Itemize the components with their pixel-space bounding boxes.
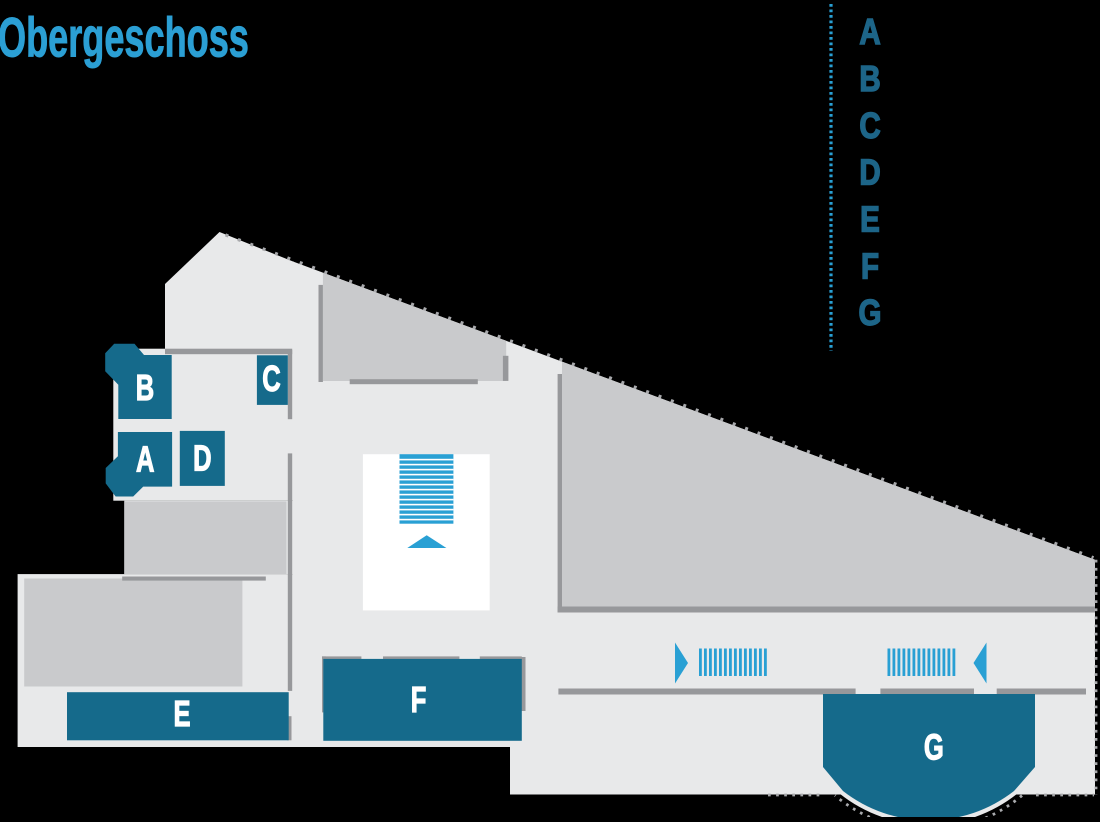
- svg-text:A: A: [859, 11, 880, 51]
- svg-text:C: C: [262, 357, 280, 399]
- svg-text:D: D: [859, 152, 880, 192]
- svg-text:C: C: [859, 105, 880, 145]
- svg-text:Obergeschoss: Obergeschoss: [0, 5, 249, 68]
- svg-text:B: B: [136, 366, 154, 408]
- svg-text:F: F: [861, 245, 879, 285]
- svg-text:G: G: [924, 726, 944, 768]
- svg-text:G: G: [859, 292, 882, 332]
- svg-text:A: A: [136, 438, 154, 480]
- svg-text:B: B: [859, 58, 880, 98]
- svg-text:F: F: [411, 678, 427, 720]
- svg-text:E: E: [860, 199, 880, 239]
- svg-text:D: D: [193, 437, 211, 479]
- svg-text:E: E: [173, 692, 190, 734]
